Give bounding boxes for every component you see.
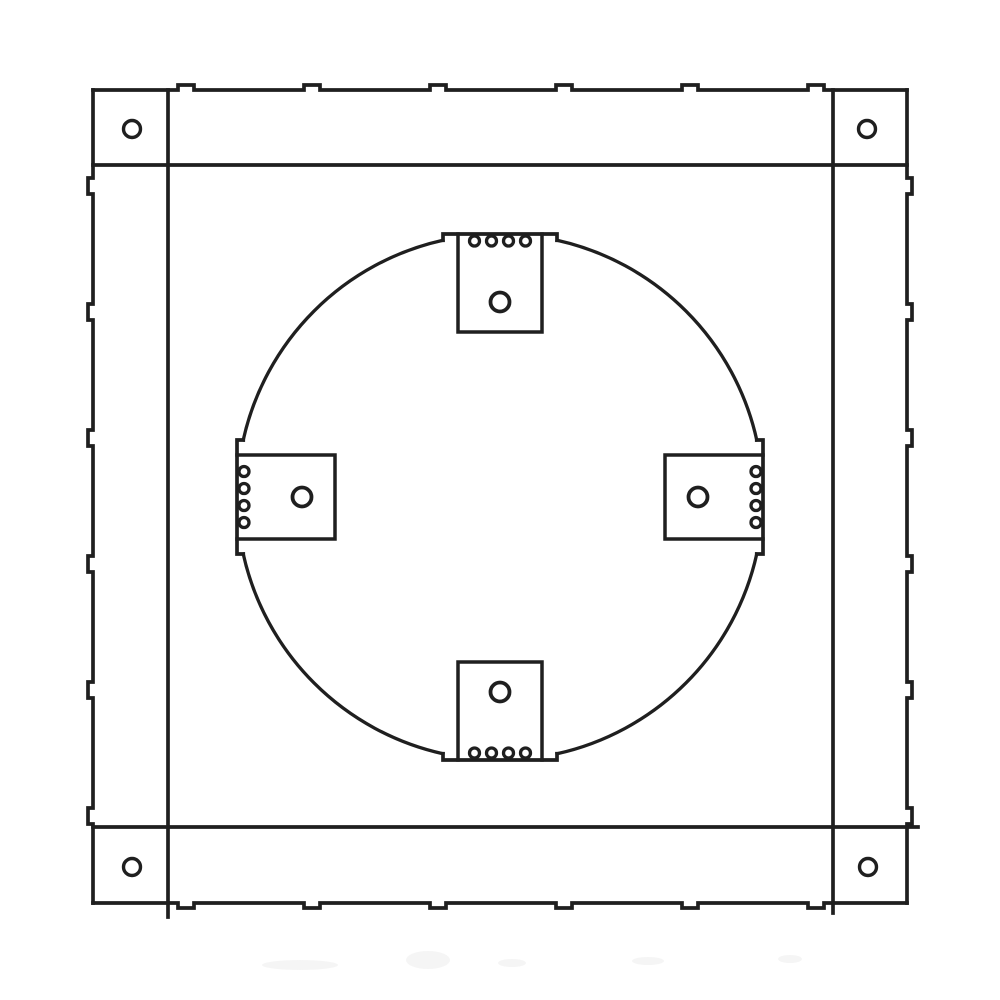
tab-top-outline — [458, 234, 542, 332]
tab-top-perforation-dot — [504, 236, 514, 246]
frame-right-edge — [907, 90, 912, 903]
tab-bottom-perforation-dot — [470, 748, 480, 758]
frame-left-edge — [88, 90, 93, 903]
tab-right-chord-edge — [757, 440, 763, 554]
tab-left — [237, 440, 335, 554]
tab-left-chord-edge — [237, 440, 243, 554]
tab-right-hole — [689, 488, 708, 507]
tab-bottom-perforation-dot — [504, 748, 514, 758]
tab-bottom-perforation-dot — [521, 748, 531, 758]
tab-bottom-perforation-dot — [487, 748, 497, 758]
tab-right-perforation-dot — [751, 501, 761, 511]
scan-smudge — [406, 951, 450, 969]
tab-top-hole — [491, 293, 510, 312]
tab-left-perforation-dot — [239, 501, 249, 511]
tab-left-perforation-dot — [239, 484, 249, 494]
tab-bottom — [443, 662, 557, 760]
tab-left-hole — [293, 488, 312, 507]
drawing-canvas — [0, 0, 1000, 1000]
frame-bottom-edge — [93, 903, 907, 908]
frame-top-edge — [93, 85, 907, 90]
tab-bottom-outline — [458, 662, 542, 760]
tab-top-chord-edge — [443, 234, 557, 240]
corner-hole-top-left — [124, 121, 141, 138]
scan-smudge — [498, 959, 526, 967]
corner-hole-top-right — [859, 121, 876, 138]
circle-arc-se — [557, 554, 757, 754]
tab-right — [665, 440, 763, 554]
tab-right-perforation-dot — [751, 518, 761, 528]
scan-smudge — [778, 955, 802, 963]
scan-smudge — [262, 960, 338, 970]
tab-top-perforation-dot — [487, 236, 497, 246]
corner-hole-bottom-right — [860, 859, 877, 876]
tab-bottom-chord-edge — [443, 754, 557, 760]
tab-right-outline — [665, 455, 763, 539]
tab-left-perforation-dot — [239, 467, 249, 477]
frame-drawing-svg — [0, 0, 1000, 1000]
tab-top-perforation-dot — [470, 236, 480, 246]
tab-bottom-hole — [491, 683, 510, 702]
tab-left-perforation-dot — [239, 518, 249, 528]
circle-arc-sw — [243, 554, 443, 754]
tab-top — [443, 234, 557, 332]
corner-hole-bottom-left — [124, 859, 141, 876]
scan-smudge — [632, 957, 664, 965]
tab-right-perforation-dot — [751, 484, 761, 494]
tab-left-outline — [237, 455, 335, 539]
circle-arc-ne — [557, 240, 757, 440]
circle-arc-nw — [243, 240, 443, 440]
tab-right-perforation-dot — [751, 467, 761, 477]
tab-top-perforation-dot — [521, 236, 531, 246]
